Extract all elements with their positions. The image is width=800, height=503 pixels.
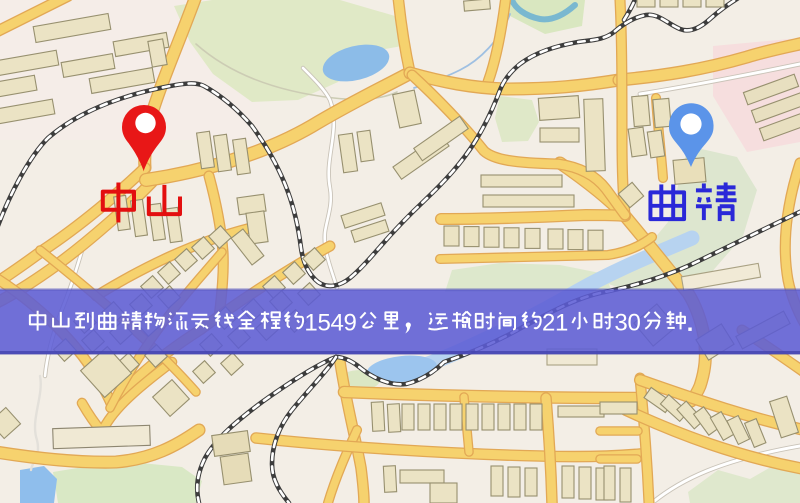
svg-text:1549: 1549: [304, 310, 356, 337]
svg-text:21: 21: [542, 310, 568, 337]
svg-text:30: 30: [614, 310, 640, 337]
